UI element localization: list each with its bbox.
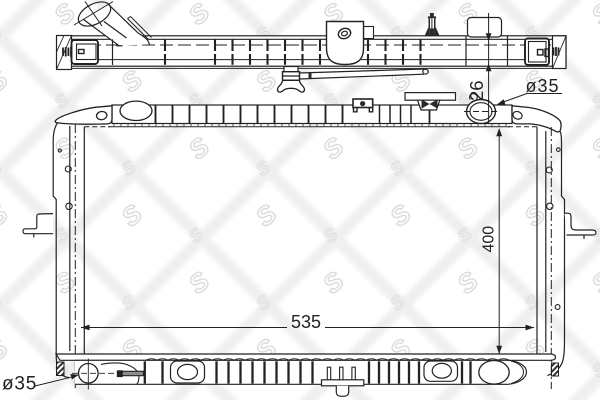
svg-text:ø35: ø35 bbox=[2, 374, 37, 395]
svg-text:26: 26 bbox=[466, 80, 487, 101]
svg-text:400: 400 bbox=[481, 226, 498, 253]
svg-text:ø35: ø35 bbox=[526, 76, 560, 96]
svg-text:535: 535 bbox=[291, 312, 321, 332]
